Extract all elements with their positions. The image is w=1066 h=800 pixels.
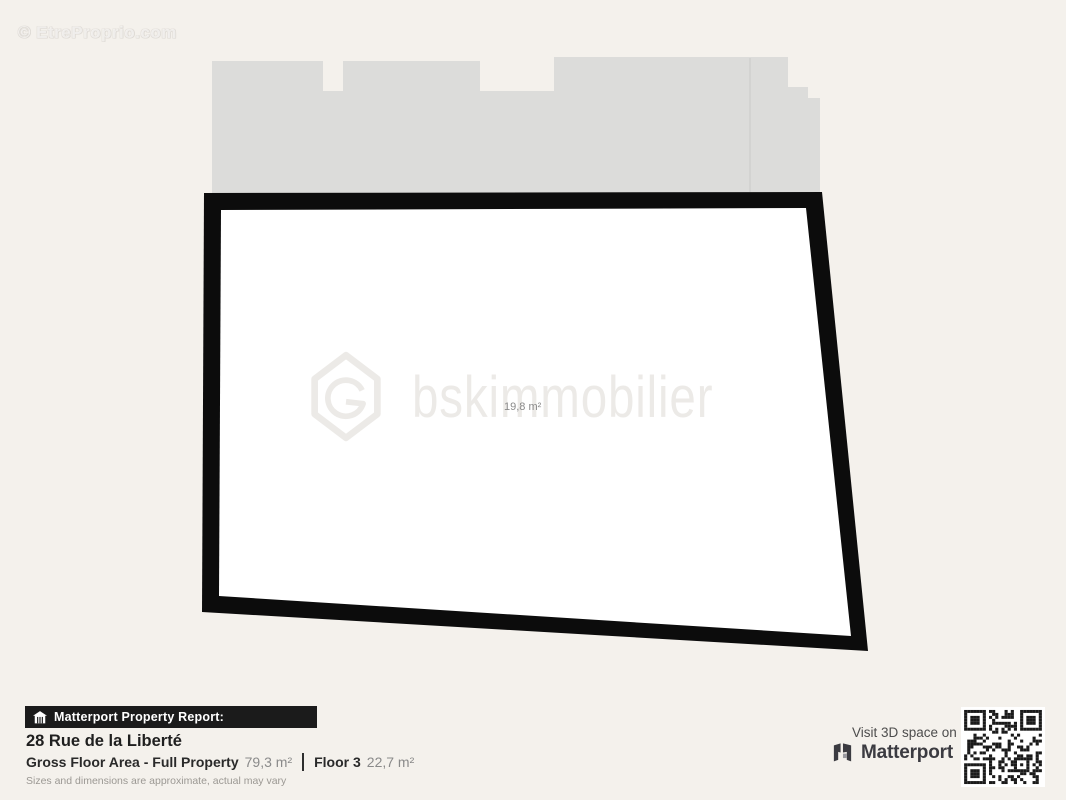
report-bar-title: Matterport Property Report:: [54, 710, 224, 724]
area-stats: Gross Floor Area - Full Property 79,3 m²…: [26, 753, 414, 771]
floor-label: Floor 3: [314, 754, 361, 770]
disclaimer-text: Sizes and dimensions are approximate, ac…: [26, 775, 286, 787]
visit-3d-text: Visit 3D space on: [852, 725, 957, 740]
property-report-image: © EtreProprio.com bskimmobilier 19,8 m² …: [0, 0, 1066, 800]
stats-divider: [302, 753, 304, 771]
building-mass-shape: [212, 57, 820, 193]
property-address: 28 Rue de la Liberté: [26, 732, 182, 751]
room-area-label: 19,8 m²: [504, 401, 541, 413]
floor-value: 22,7 m²: [367, 754, 414, 770]
matterport-logo: Matterport: [831, 741, 953, 764]
report-title-bar: Matterport Property Report:: [25, 706, 317, 728]
matterport-wordmark: Matterport: [861, 742, 953, 764]
gross-area-value: 79,3 m²: [245, 754, 292, 770]
gross-area-label: Gross Floor Area - Full Property: [26, 754, 239, 770]
matterport-logo-icon: [831, 741, 854, 764]
plan-interior-shape: [219, 208, 851, 636]
floor-plan: [0, 0, 1066, 800]
qr-code: [961, 707, 1045, 792]
home-icon: [33, 711, 47, 724]
